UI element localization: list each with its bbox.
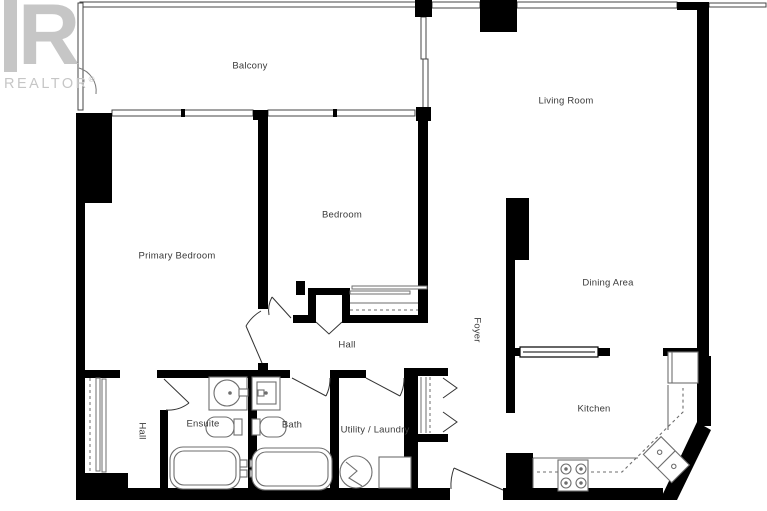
living-room-window-right	[517, 2, 677, 8]
bedroom-closet-door-track-1	[352, 286, 427, 289]
wall-ensuite-left	[160, 410, 168, 490]
entry-door	[451, 468, 503, 490]
wall-dining-pillar	[506, 198, 529, 260]
stove	[558, 460, 588, 491]
bath-bathtub	[252, 448, 332, 490]
wall-foyer-west	[418, 113, 428, 323]
bathroom-fixtures	[170, 377, 411, 490]
wall-door-jamb	[296, 281, 305, 295]
realtor-logo-icon: R	[4, 0, 95, 72]
balcony-right-railing	[421, 17, 426, 59]
wall-kitchen-left-upper	[506, 356, 515, 413]
doors	[79, 68, 503, 490]
bath-toilet	[252, 417, 286, 437]
pass-through-counter	[520, 347, 598, 357]
foyer-closet-bifold-door-1	[443, 378, 457, 398]
walls	[76, 0, 711, 500]
wall-bedroom-divider	[258, 113, 268, 309]
bedroom-closet-door-track-2	[350, 291, 410, 294]
ensuite-toilet	[206, 417, 242, 437]
wall-kitchen-left-block	[506, 453, 533, 493]
windows-and-railings	[78, 2, 766, 116]
ensuite-door	[164, 379, 189, 410]
bedroom-door	[269, 297, 291, 318]
floor-plan: R REALTOR® Balcony Living Room Bedroom P…	[0, 0, 767, 511]
realtor-watermark: R REALTOR®	[4, 0, 95, 92]
coat-closet-bifold-door	[316, 322, 342, 334]
foyer-closet-top-wall	[418, 368, 448, 376]
hall-closet-slider-2	[102, 379, 106, 472]
wall-left-thick-block	[76, 113, 112, 203]
wall-kitchen-stub-right	[598, 348, 610, 356]
wall-hall-north-2	[342, 315, 428, 323]
primary-bedroom-door	[246, 311, 262, 363]
balcony-right-railing-lower	[423, 59, 428, 108]
wall-top-right-corner	[677, 2, 709, 10]
wall-foyer-dining	[506, 258, 515, 350]
wall-right-kitchen	[697, 356, 711, 426]
balcony-top-railing	[80, 2, 426, 7]
kitchen-fixtures	[533, 352, 698, 491]
hall-closet-slider-1	[96, 378, 100, 471]
bath-vanity-sink	[252, 377, 280, 410]
utility-appliance	[379, 457, 411, 488]
wall-top-column	[480, 0, 517, 32]
floor-plan-drawing	[0, 0, 767, 511]
living-room-window-left	[432, 2, 480, 8]
ensuite-bathtub	[170, 447, 240, 489]
balcony-post-top	[415, 0, 432, 17]
window-mullion-1	[181, 109, 185, 117]
washer	[340, 456, 372, 488]
wall-kitchen-stub-left	[506, 348, 520, 356]
utility-door	[366, 378, 404, 396]
coat-closet-right-wall	[342, 288, 350, 323]
wall-right	[697, 3, 709, 356]
realtor-watermark-text: REALTOR®	[4, 75, 95, 92]
bath-door	[292, 378, 330, 396]
foyer-closet-bifold-door-2	[443, 412, 457, 432]
bedroom-window-right	[268, 110, 415, 116]
window-mullion-2	[333, 109, 337, 117]
wall-bath-section-1	[85, 370, 120, 378]
ensuite-vanity-sink	[209, 377, 248, 410]
neighbor-wall-line	[709, 3, 766, 7]
foyer-closet-bottom-wall	[418, 434, 448, 442]
